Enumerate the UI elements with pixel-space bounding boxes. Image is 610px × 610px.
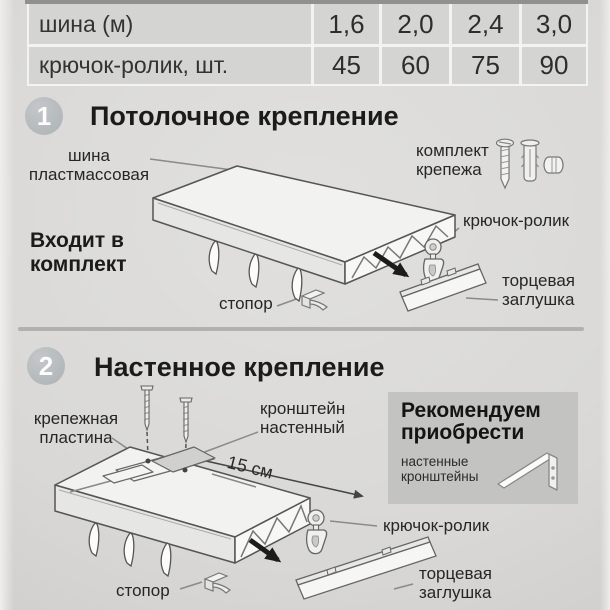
label-stopper-2: стопор (116, 581, 170, 600)
size-table: шина (м) 1,6 2,0 2,4 3,0 крючок-ролик, ш… (27, 4, 588, 86)
table-cell: 2,0 (382, 4, 449, 44)
label-end-cap-2: торцевая заглушка (419, 564, 519, 602)
leader-line-endcap (466, 298, 498, 300)
rail-illustration (153, 166, 455, 301)
included-note: Входит в комплект (30, 229, 162, 277)
label-wall-bracket: кронштейн настенный (260, 399, 360, 437)
table-cell: 1,6 (314, 4, 379, 44)
wall-bracket-icon (493, 440, 573, 498)
stopper-icon (302, 290, 327, 310)
leader-line-hook (330, 521, 377, 526)
table-row-label: шина (м) (29, 4, 311, 44)
label-hook-roller-2: крючок-ролик (383, 516, 489, 535)
leader-line-stopper (180, 582, 202, 589)
label-plastic-rail: шина пластмассовая (28, 146, 150, 184)
table-cell: 45 (314, 47, 379, 84)
end-cap-illustration (400, 264, 486, 311)
leader-line-endcap (394, 584, 413, 589)
label-stopper-1: стопор (219, 294, 273, 313)
table-cell: 2,4 (452, 4, 519, 44)
section-divider (18, 327, 584, 331)
packaging-instruction-panel: шина (м) 1,6 2,0 2,4 3,0 крючок-ролик, ш… (0, 0, 610, 610)
recommend-title: Рекомендуем приобрести (401, 400, 556, 444)
table-cell: 3,0 (522, 4, 586, 44)
leader-line-bracket (202, 432, 258, 453)
hook-roller-icon (307, 510, 327, 554)
table-cell: 60 (382, 47, 449, 84)
table-row-label: крючок-ролик, шт. (29, 47, 311, 84)
label-end-cap-1: торцевая заглушка (502, 271, 602, 309)
plug-icon (544, 157, 563, 173)
mounting-kit-icons (497, 139, 564, 188)
label-mounting-plate: крепежная пластина (26, 409, 126, 447)
dowel-icon (521, 140, 539, 181)
recommend-box: Рекомендуем приобрести настенные кронште… (388, 392, 578, 504)
hook-roller-icon (424, 239, 444, 283)
label-hook-roller-1: крючок-ролик (463, 211, 569, 230)
label-mounting-kit: комплект крепежа (416, 141, 504, 179)
recommend-item-label: настенные кронштейны (401, 454, 486, 484)
table-cell: 90 (522, 47, 586, 84)
table-cell: 75 (452, 47, 519, 84)
stopper-icon (205, 573, 230, 593)
